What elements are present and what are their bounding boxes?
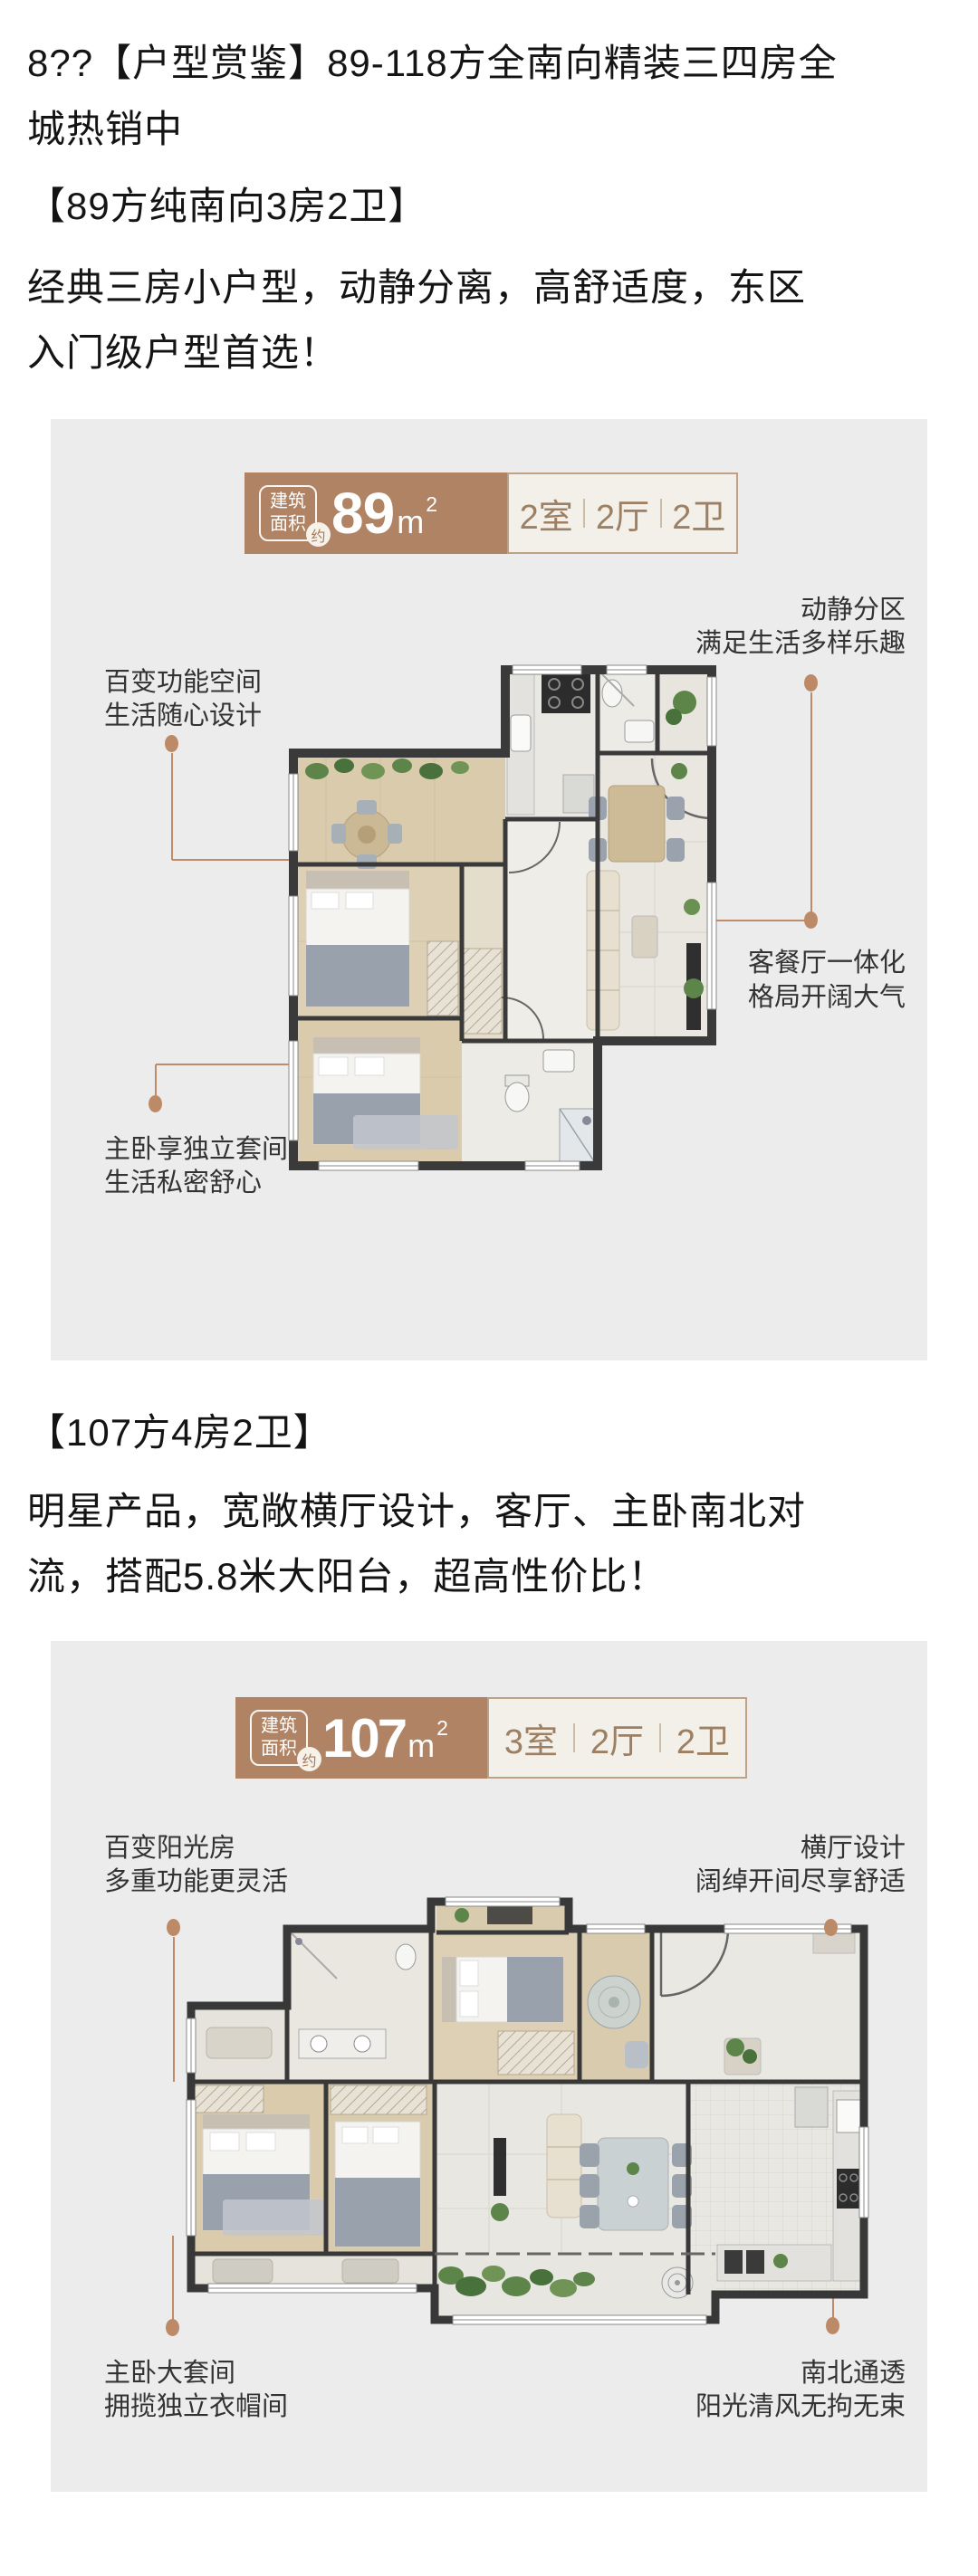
ann-89-livingdining-2: 格局开阔大气 [748, 981, 906, 1014]
ann-107-ventilation-1: 南北通透 [801, 2357, 906, 2390]
ann-107-master-suite-1: 主卧大套间 [104, 2357, 235, 2390]
leader-line [173, 1937, 175, 2082]
ann-89-zoning-1: 动静分区 [801, 594, 906, 626]
floor-plan-107 [181, 1892, 878, 2326]
ann-107-ventilation-2: 阳光清风无拘无束 [695, 2390, 906, 2423]
approx-circle: 约 [297, 1747, 321, 1771]
leader-line [171, 753, 173, 860]
section-89-desc-line-2: 入门级户型首选！ [27, 329, 339, 378]
spec-halls: 2厅 [596, 489, 649, 539]
room-spec-89: 2室 2厅 2卫 [507, 472, 738, 554]
leader-dot [166, 2319, 179, 2336]
area-value-89: 89m2 [331, 480, 435, 547]
ann-107-sunroom-2: 多重功能更灵活 [104, 1865, 288, 1898]
section-107-desc-line-2: 流，搭配5.8米大阳台，超高性价比！ [27, 1552, 666, 1602]
spec-divider [573, 1723, 575, 1752]
ann-107-wide-hall-2: 阔绰开间尽享舒适 [695, 1865, 906, 1898]
ann-89-master-suite-2: 生活私密舒心 [104, 1167, 262, 1199]
area-badge-89: 建筑 面积 约 89m2 2室 2厅 2卫 [244, 472, 738, 554]
ann-89-flex-space-2: 生活随心设计 [104, 700, 262, 732]
section-107-title: 【107方4房2卫】 [27, 1408, 332, 1458]
ann-89-zoning-2: 满足生活多样乐趣 [695, 627, 906, 660]
leader-dot [804, 674, 818, 692]
section-107-desc-line-1: 明星产品，宽敞横厅设计，客厅、主卧南北对 [27, 1487, 806, 1537]
ann-107-master-suite-2: 拥揽独立衣帽间 [104, 2390, 288, 2423]
ann-107-sunroom-1: 百变阳光房 [104, 1832, 235, 1865]
area-badge-107: 建筑 面积 约 107m2 3室 2厅 2卫 [235, 1697, 747, 1779]
article-heading-line-1: 8??【户型赏鉴】89-118方全南向精装三四房全 [27, 39, 838, 89]
ann-89-flex-space-1: 百变功能空间 [104, 666, 262, 699]
area-badge-107-left: 建筑 面积 约 107m2 [235, 1697, 487, 1779]
ann-107-wide-hall-1: 横厅设计 [801, 1832, 906, 1865]
spec-rooms: 2室 [520, 489, 573, 539]
section-89-desc-line-1: 经典三房小户型，动静分离，高舒适度，东区 [27, 263, 806, 313]
area-value-107: 107m2 [322, 1707, 444, 1770]
spec-baths: 2卫 [672, 489, 725, 539]
leader-dot [824, 1919, 838, 1936]
leader-dot [165, 735, 178, 752]
spec-divider [583, 499, 585, 528]
leader-line [810, 692, 812, 921]
area-badge-89-left: 建筑 面积 约 89m2 [244, 472, 507, 554]
ann-89-master-suite-1: 主卧享独立套间 [104, 1133, 288, 1166]
section-89-title: 【89方纯南向3房2卫】 [27, 182, 427, 232]
floor-plan-89 [272, 656, 724, 1177]
ann-89-livingdining-1: 客餐厅一体化 [748, 947, 906, 979]
article-page: 8??【户型赏鉴】89-118方全南向精装三四房全 城热销中 【89方纯南向3房… [0, 0, 978, 2576]
leader-line [155, 1064, 157, 1097]
room-spec-107: 3室 2厅 2卫 [487, 1697, 747, 1779]
approx-circle: 约 [306, 522, 331, 547]
leader-dot [149, 1095, 162, 1112]
spec-rooms: 3室 [504, 1713, 558, 1763]
leader-dot [826, 2317, 839, 2334]
leader-line [715, 920, 811, 921]
spec-divider [659, 1723, 661, 1752]
spec-halls: 2厅 [590, 1713, 644, 1763]
article-heading-line-2: 城热销中 [27, 105, 183, 155]
leader-dot [167, 1919, 180, 1936]
spec-baths: 2卫 [676, 1713, 730, 1763]
leader-line [172, 2236, 174, 2321]
leader-dot [804, 911, 818, 929]
spec-divider [660, 499, 662, 528]
